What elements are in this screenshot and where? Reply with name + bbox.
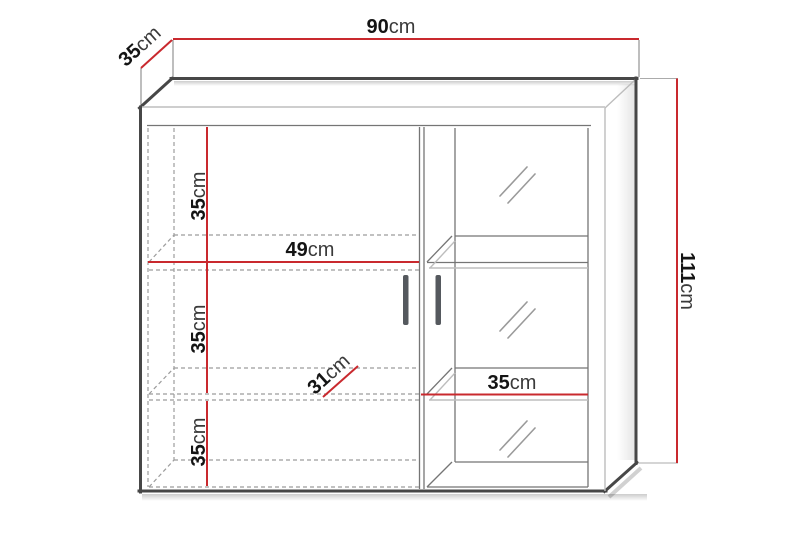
label-left-shelf-1: 35cm (188, 172, 210, 221)
furniture-dimension-diagram: 90cm 35cm 111cm 49cm 35cm 35cm 35cm 35cm… (0, 0, 800, 533)
glass-reflection-mark-top (500, 167, 535, 203)
hidden-floor-bevel (149, 460, 174, 487)
glass-door-compartment (427, 128, 588, 487)
cabinet-top-band (140, 40, 640, 108)
top-band-shadow (174, 81, 636, 86)
right-side-shadow (617, 84, 635, 460)
cabinet-body-outline (139, 78, 637, 492)
hidden-shelf2-bevel (149, 368, 174, 394)
right-door-handle (436, 275, 442, 325)
label-overall-width: 90cm (367, 16, 416, 38)
label-left-shelf-3: 35cm (188, 418, 210, 467)
door-handles (403, 275, 441, 325)
diagram-svg: 90cm 35cm 111cm 49cm 35cm 35cm 35cm 35cm… (0, 0, 800, 533)
label-left-shelf-2: 35cm (188, 305, 210, 354)
label-right-inner-width: 35cm (488, 372, 537, 394)
label-overall-depth: 35cm (114, 22, 165, 71)
glass-reflection-mark-middle (500, 302, 535, 338)
bottom-shadow (142, 494, 647, 501)
glass-reflection-mark-bottom (500, 421, 535, 457)
left-door-handle (403, 275, 409, 325)
label-left-inner-width: 49cm (286, 239, 335, 261)
glass-floor-bevel (427, 462, 452, 487)
dimension-lines (141, 39, 678, 486)
top-left-depth-edge (140, 79, 173, 109)
shadow-effects (142, 81, 647, 501)
label-overall-height: 111cm (676, 252, 698, 310)
doors-and-frame (147, 126, 591, 490)
hidden-shelf1-bevel (149, 235, 174, 262)
